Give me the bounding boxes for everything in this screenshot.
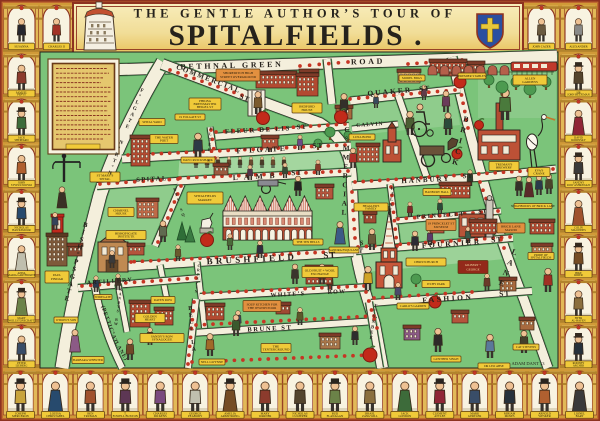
svg-text:DR LEO ABSE: DR LEO ABSE <box>484 364 504 368</box>
svg-text:PEABODY: PEABODY <box>188 414 203 418</box>
svg-text:STYPULTOWSKI: STYPULTOWSKI <box>11 184 32 187</box>
svg-text:ATTLEE: ATTLEE <box>434 414 445 418</box>
svg-text:GERTLER: GERTLER <box>468 414 481 418</box>
svg-text:ST: ST <box>499 289 511 299</box>
svg-text:HEART: HEART <box>145 318 156 322</box>
svg-text:19 FOLGATE ST: 19 FOLGATE ST <box>179 115 201 119</box>
svg-text:JOHN CAZER: JOHN CAZER <box>532 45 550 49</box>
svg-text:HAWKSMOOR: HAWKSMOOR <box>12 229 31 232</box>
svg-text:THE TEN BELLS: THE TEN BELLS <box>297 240 320 244</box>
svg-text:NELL GWYNNE: NELL GWYNNE <box>201 360 223 364</box>
svg-text:ST: ST <box>478 209 488 216</box>
svg-text:ST: ST <box>462 172 473 181</box>
svg-text:ROW: ROW <box>327 289 346 296</box>
svg-text:SYNAGOGUE: SYNAGOGUE <box>152 338 173 342</box>
svg-text:CULPEPER: CULPEPER <box>292 414 307 418</box>
svg-text:WESKER: WESKER <box>538 414 550 418</box>
svg-text:HOUSE: HOUSE <box>116 212 127 216</box>
svg-text:STREET OVERGROUND: STREET OVERGROUND <box>220 75 257 79</box>
svg-text:HOUSE: HOUSE <box>302 108 313 112</box>
svg-text:JOHN BETJEMAN: JOHN BETJEMAN <box>567 94 589 97</box>
svg-text:TRUMAN: TRUMAN <box>84 414 98 418</box>
svg-text:AL-HAFEN: AL-HAFEN <box>572 319 586 322</box>
svg-text:MODEL BDGS: MODEL BDGS <box>402 76 422 80</box>
svg-text:CAT STEVENS: CAT STEVENS <box>516 345 536 349</box>
svg-text:SPITALFIELDS: SPITALFIELDS <box>531 255 552 259</box>
svg-text:PEPYS: PEPYS <box>17 94 26 97</box>
svg-text:MARKET: MARKET <box>198 198 212 202</box>
svg-text:ST: ST <box>297 124 308 132</box>
svg-text:ITCHY PARK: ITCHY PARK <box>427 282 446 286</box>
svg-text:WIDOW'S SON: WIDOW'S SON <box>56 318 77 322</box>
svg-text:FAMILY: FAMILY <box>365 206 377 210</box>
svg-text:CRANE: CRANE <box>533 172 544 176</box>
svg-text:THE GENTLE AUTHOR’S TOUR OF: THE GENTLE AUTHOR’S TOUR OF <box>134 7 457 21</box>
svg-text:EXCHANGE: EXCHANGE <box>311 272 329 276</box>
svg-text:ZANGWILL: ZANGWILL <box>362 414 378 418</box>
svg-text:POET: POET <box>160 139 168 143</box>
svg-text:MASJID: MASJID <box>505 228 518 232</box>
svg-text:NEIGHBOURS OF BRICK LANE: NEIGHBOURS OF BRICK LANE <box>511 204 555 208</box>
svg-text:MERCERON: MERCERON <box>12 414 30 418</box>
svg-text:WIDEGATE: WIDEGATE <box>95 295 111 299</box>
svg-text:ADAM DANT 13: ADAM DANT 13 <box>512 361 546 366</box>
svg-text:ROW ASHKENAZI: ROW ASHKENAZI <box>567 184 590 187</box>
svg-text:CHARLES II: CHARLES II <box>48 45 64 49</box>
svg-text:WOLLSTONECRAFT: WOLLSTONECRAFT <box>8 319 34 322</box>
svg-text:ARMSTRONG: ARMSTRONG <box>221 414 241 418</box>
svg-text:BEIGEL ST: BEIGEL ST <box>197 105 213 109</box>
svg-text:ROAD: ROAD <box>351 57 385 67</box>
svg-text:MOSES: MOSES <box>505 414 515 418</box>
svg-text:SUSANNA: SUSANNA <box>14 45 29 49</box>
svg-text:ST: ST <box>312 141 324 151</box>
svg-text:ST: ST <box>419 84 431 94</box>
svg-text:PREMIER STABLES: PREMIER STABLES <box>458 74 486 78</box>
svg-text:DICKENS: DICKENS <box>154 414 167 418</box>
svg-text:TENTERGROUND: TENTERGROUND <box>263 348 290 352</box>
svg-text:LIEBERG: LIEBERG <box>16 365 28 368</box>
svg-text:LUNA BOHO: LUNA BOHO <box>353 135 372 139</box>
svg-text:FOWELL BUXTON: FOWELL BUXTON <box>113 414 139 418</box>
svg-text:ST: ST <box>291 168 303 178</box>
svg-text:MUSEUM: MUSEUM <box>434 225 449 229</box>
svg-text:PINDAR: PINDAR <box>51 277 64 281</box>
svg-text:CHRISTCHURCH: CHRISTCHURCH <box>414 260 439 264</box>
svg-text:GUNTHER SINGH: GUNTHER SINGH <box>433 357 459 361</box>
svg-text:RODINSKY: RODINSKY <box>571 139 585 142</box>
svg-text:SHEPPARD: SHEPPARD <box>14 139 28 142</box>
svg-text:FLANAGAN: FLANAGAN <box>327 414 344 418</box>
svg-text:LONDON: LONDON <box>398 414 411 418</box>
svg-text:RAVEN ROW: RAVEN ROW <box>154 298 172 302</box>
svg-text:THE JEWISH POOR: THE JEWISH POOR <box>248 306 277 310</box>
svg-text:CHRISTABEL: CHRISTABEL <box>46 414 64 418</box>
svg-text:BART: BART <box>576 414 584 418</box>
svg-text:RIDER: RIDER <box>574 274 583 277</box>
svg-text:INSTITUTE: INSTITUTE <box>118 235 135 239</box>
svg-text:GEORGE: GEORGE <box>466 267 479 271</box>
svg-text:SPITAL YARD: SPITAL YARD <box>142 120 162 124</box>
svg-text:HANBURY HALL: HANBURY HALL <box>425 190 449 194</box>
svg-text:MACINNES: MACINNES <box>571 229 586 232</box>
svg-text:BREWERY: BREWERY <box>496 166 513 170</box>
svg-text:SPITAL: SPITAL <box>100 177 111 181</box>
svg-text:ST: ST <box>323 250 337 261</box>
svg-text:SPITALFIELDS .: SPITALFIELDS . <box>168 20 423 52</box>
svg-text:GARDENS: GARDENS <box>522 80 538 84</box>
svg-text:ARCHER: ARCHER <box>573 365 584 368</box>
svg-text:ST: ST <box>491 235 503 245</box>
svg-text:WARNER: WARNER <box>259 414 272 418</box>
svg-text:MARIA GARTHWAITE: MARIA GARTHWAITE <box>7 274 35 277</box>
svg-text:ALEXANDER: ALEXANDER <box>569 45 587 49</box>
svg-text:BARBARA WEBSTER: BARBARA WEBSTER <box>73 358 104 362</box>
